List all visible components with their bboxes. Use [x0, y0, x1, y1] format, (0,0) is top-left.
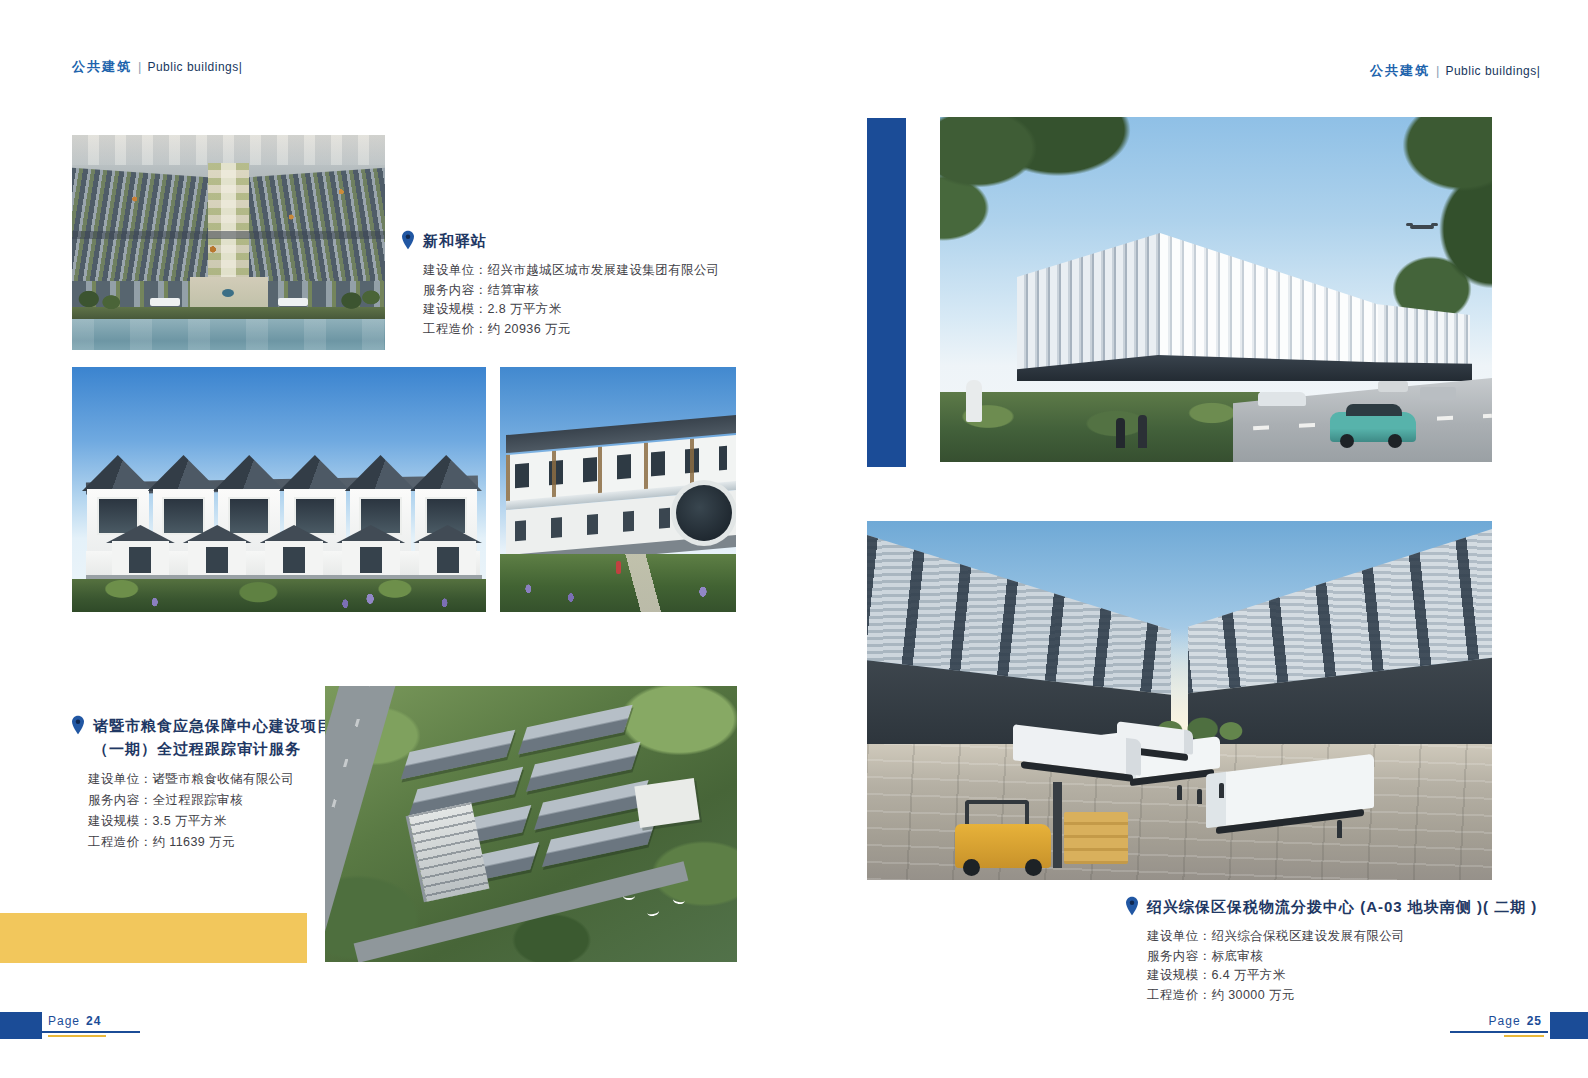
field-value: 约 20936 万元 [488, 322, 571, 336]
render-person [616, 561, 621, 574]
field-value: 2.8 万平方米 [488, 302, 562, 316]
render-wheel [1025, 859, 1042, 876]
image-row-houses-render [72, 367, 486, 612]
render-cross-corridor [72, 231, 385, 239]
brochure-spread: 公共建筑|Public buildings| 公共建筑|Public build… [0, 0, 1588, 1078]
footer-right-square [1550, 1012, 1588, 1039]
render-bus [278, 298, 308, 306]
accent-yellow-block [0, 913, 307, 963]
footer-left-yellow-rule [48, 1035, 106, 1037]
render-garden [72, 579, 486, 612]
field-value: 诸暨市粮食收储有限公司 [153, 772, 295, 786]
render-river [72, 319, 385, 350]
image-bonded-logistics-yard-render [867, 521, 1492, 880]
field-value: 绍兴综合保税区建设发展有限公司 [1212, 929, 1406, 943]
render-moon-gate [676, 485, 732, 541]
render-porch-row [106, 525, 482, 577]
project-field: 建设规模：6.4 万平方米 [1147, 966, 1564, 986]
render-porch-gable [413, 525, 482, 577]
page-right-header: 公共建筑|Public buildings| [1370, 62, 1540, 80]
render-car-teal [1330, 412, 1416, 442]
field-value: 约 30000 万元 [1212, 988, 1295, 1002]
render-bus [150, 298, 180, 306]
render-person [1197, 789, 1202, 804]
page-label: Page [48, 1014, 80, 1028]
render-bird [646, 907, 659, 917]
header-zh-label: 公共建筑 [1370, 63, 1430, 78]
header-en-label: Public buildings| [147, 60, 242, 74]
render-pedestrian [1116, 418, 1125, 448]
footer-left-square [0, 1012, 42, 1039]
render-side-building [634, 778, 699, 828]
field-value: 约 11639 万元 [153, 835, 235, 849]
render-wheel [963, 859, 980, 876]
render-forklift-cage [965, 800, 1029, 826]
page-number: 25 [1527, 1014, 1542, 1028]
render-autumn-trees [72, 163, 385, 283]
field-label: 建设规模： [423, 302, 488, 316]
render-car [1258, 392, 1306, 406]
field-label: 工程造价： [423, 322, 488, 336]
project-field: 服务内容：标底审核 [1147, 947, 1564, 967]
header-divider: | [1436, 63, 1439, 78]
field-label: 建设规模： [88, 814, 153, 828]
project-block-xinhe-station: 新和驿站 建设单位：绍兴市越城区城市发展建设集团有限公司 服务内容：结算审核 建… [400, 229, 730, 339]
field-label: 服务内容： [88, 793, 153, 807]
field-label: 建设单位： [88, 772, 153, 786]
project-field: 服务内容：结算审核 [423, 281, 730, 301]
render-person [1177, 785, 1182, 800]
field-value: 标底审核 [1212, 949, 1264, 963]
field-label: 建设规模： [1147, 968, 1212, 982]
field-label: 建设单位： [423, 263, 488, 277]
project-title: 新和驿站 [423, 229, 487, 252]
field-label: 工程造价： [1147, 988, 1212, 1002]
render-entry-plaza [190, 277, 268, 311]
field-label: 建设单位： [1147, 929, 1212, 943]
image-logistics-hq-render [940, 117, 1492, 462]
map-pin-icon [400, 230, 416, 250]
render-statue [966, 380, 982, 422]
render-sky [72, 135, 385, 165]
project-title: 诸暨市粮食应急保障中心建设项目（一期）全过程跟踪审计服务 [93, 714, 335, 760]
project-fields: 建设单位：绍兴综合保税区建设发展有限公司 服务内容：标底审核 建设规模：6.4 … [1147, 927, 1564, 1005]
field-value: 6.4 万平方米 [1212, 968, 1286, 982]
render-landscaping [940, 392, 1260, 462]
render-pedestrian [1138, 415, 1147, 448]
accent-blue-bar [867, 118, 906, 467]
project-field: 工程造价：约 20936 万元 [423, 320, 730, 340]
render-tree [329, 283, 385, 315]
render-person [1219, 783, 1224, 798]
footer-left-rule [42, 1031, 140, 1033]
render-porch-gable [183, 525, 252, 577]
footer-right-rule [1450, 1031, 1548, 1033]
header-en-label: Public buildings| [1445, 64, 1540, 78]
header-divider: | [138, 59, 141, 74]
render-bird [673, 895, 686, 905]
footer-left-page-number: Page24 [48, 1014, 101, 1028]
render-bird [623, 892, 635, 900]
project-fields: 建设单位：绍兴市越城区城市发展建设集团有限公司 服务内容：结算审核 建设规模：2… [423, 261, 730, 339]
page-label: Page [1489, 1014, 1521, 1028]
render-tree-foliage [940, 117, 1150, 253]
page-number: 24 [86, 1014, 101, 1028]
field-label: 服务内容： [423, 283, 488, 297]
project-field: 工程造价：约 30000 万元 [1147, 986, 1564, 1006]
image-courtyard-building-render [500, 367, 736, 612]
render-tree [72, 283, 128, 315]
project-field: 建设单位：绍兴市越城区城市发展建设集团有限公司 [423, 261, 730, 281]
render-forklift-mast [1053, 782, 1062, 868]
image-granary-complex-aerial [325, 686, 737, 962]
render-car [1378, 381, 1408, 392]
render-car [1420, 387, 1456, 400]
render-porch-gable [106, 525, 175, 577]
render-person [1337, 820, 1342, 838]
field-value: 全过程跟踪审核 [153, 793, 243, 807]
footer-right-page-number: Page25 [1489, 1014, 1542, 1028]
field-value: 绍兴市越城区城市发展建设集团有限公司 [488, 263, 720, 277]
map-pin-icon [70, 715, 86, 735]
render-road [325, 686, 395, 962]
image-xinhe-station-aerial [72, 135, 385, 350]
render-pallet-crate [1064, 812, 1128, 864]
project-field: 建设单位：绍兴综合保税区建设发展有限公司 [1147, 927, 1564, 947]
render-drone [1410, 225, 1434, 229]
field-value: 3.5 万平方米 [153, 814, 227, 828]
map-pin-icon [1124, 896, 1140, 916]
field-label: 工程造价： [88, 835, 153, 849]
project-block-bonded-logistics-center: 绍兴综保区保税物流分拨中心 (A-03 地块南侧 )( 二期 ) 建设单位：绍兴… [1124, 895, 1564, 1005]
field-label: 服务内容： [1147, 949, 1212, 963]
page-left-header: 公共建筑|Public buildings| [72, 58, 242, 76]
field-value: 结算审核 [488, 283, 540, 297]
project-field: 建设规模：2.8 万平方米 [423, 300, 730, 320]
header-zh-label: 公共建筑 [72, 59, 132, 74]
footer-right-yellow-rule [1504, 1035, 1544, 1037]
render-porch-gable [336, 525, 405, 577]
project-title: 绍兴综保区保税物流分拨中心 (A-03 地块南侧 )( 二期 ) [1147, 895, 1537, 918]
render-porch-gable [260, 525, 329, 577]
